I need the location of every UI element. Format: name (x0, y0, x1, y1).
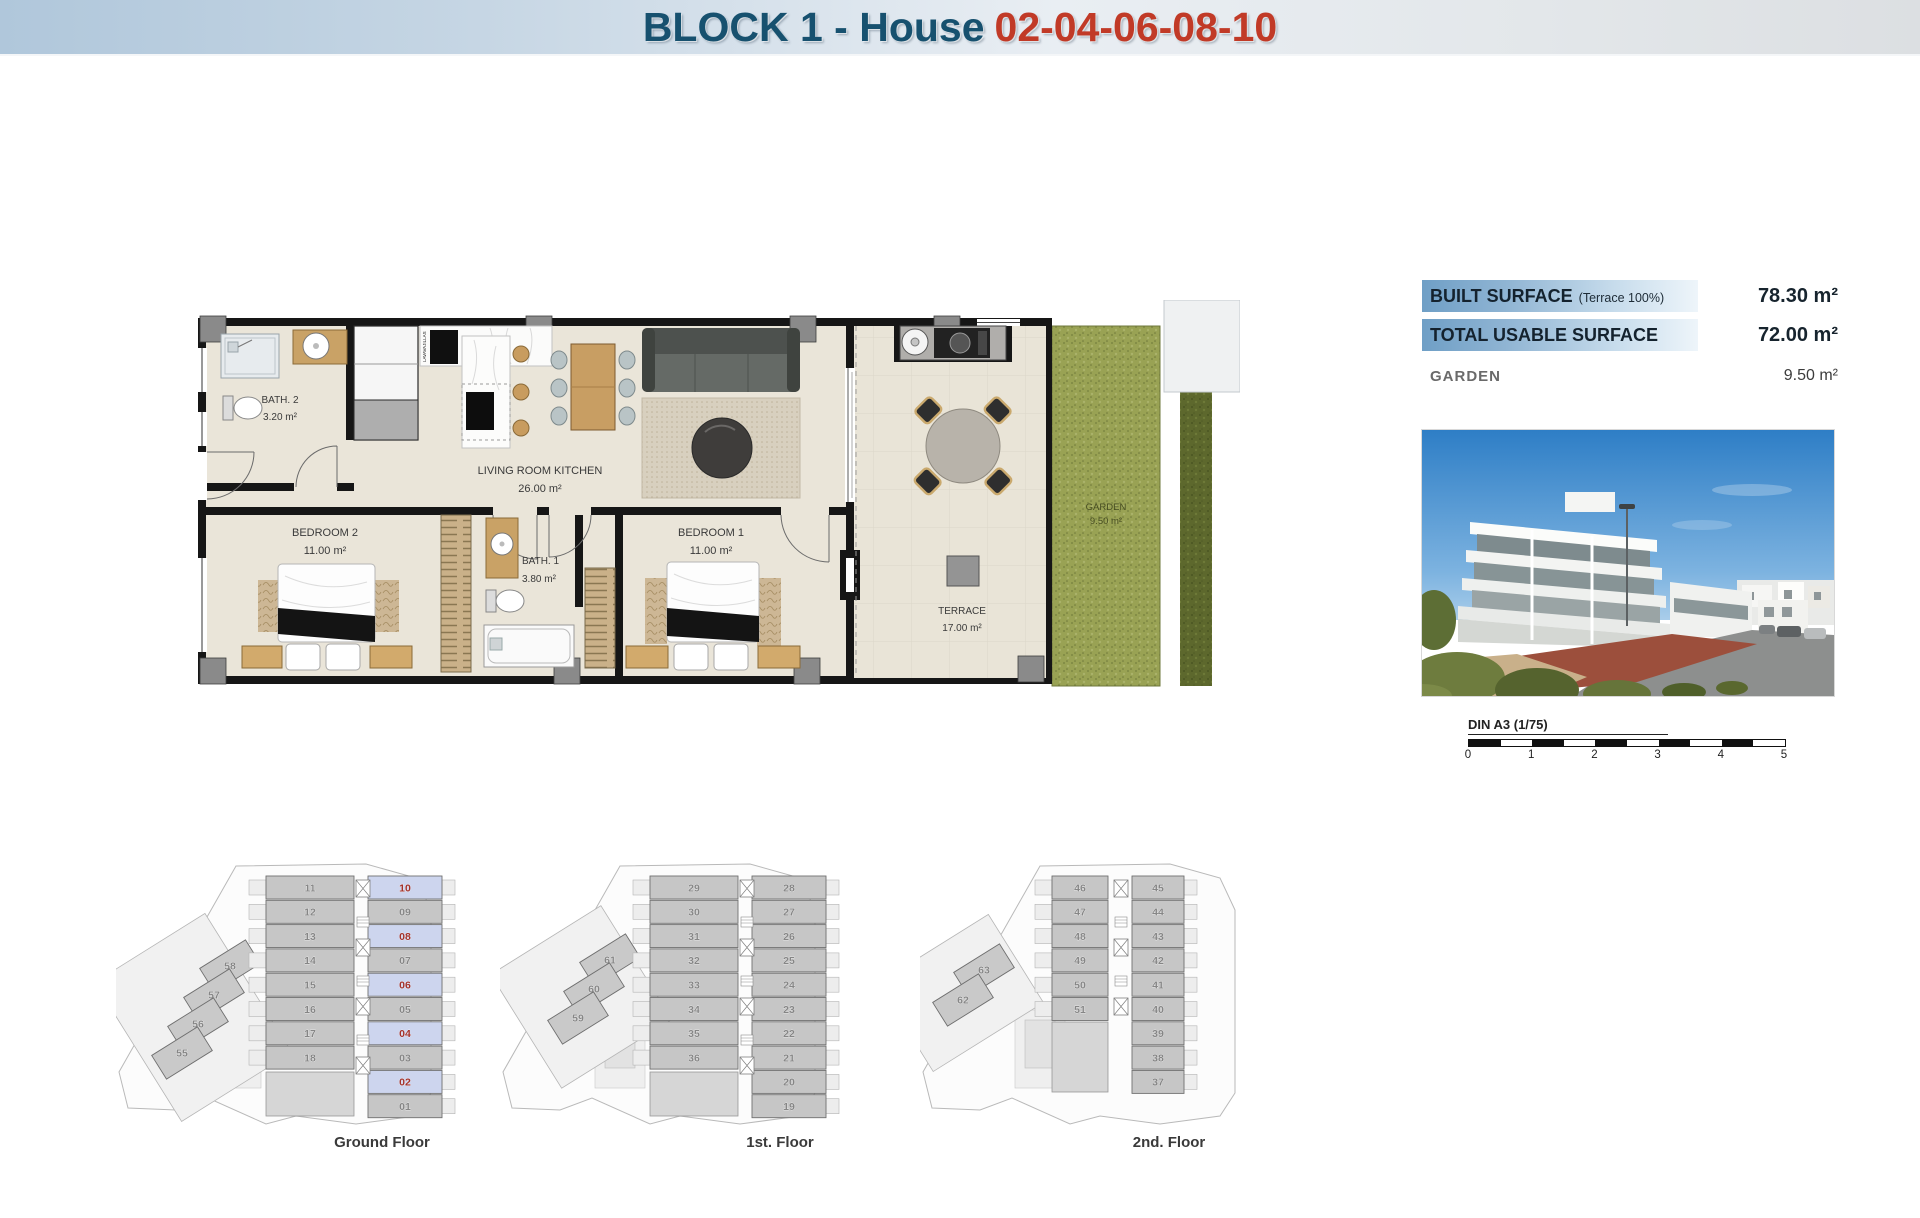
svg-text:26.00 m²: 26.00 m² (518, 483, 562, 495)
scale-bar: DIN A3 (1/75) 012345 (1468, 716, 1786, 763)
unit-number: 14 (304, 955, 316, 967)
unit-number: 09 (399, 907, 411, 919)
unit-number: 55 (176, 1048, 188, 1060)
unit-number: 27 (783, 907, 795, 919)
living-label: LIVING ROOM KITCHEN (478, 465, 603, 477)
garden-label: GARDEN (1086, 502, 1127, 513)
svg-text:BATH. 1: BATH. 1 (522, 556, 559, 567)
svg-text:9.50 m²: 9.50 m² (1090, 516, 1122, 527)
svg-text:3.20 m²: 3.20 m² (263, 412, 298, 423)
usable-surface-label: TOTAL USABLE SURFACE (1422, 325, 1658, 346)
unit-number: 30 (688, 907, 700, 919)
unit-number: 39 (1152, 1028, 1164, 1040)
svg-text:TERRACE: TERRACE (938, 606, 986, 617)
scale-tick: 0 (1465, 749, 1471, 761)
ground-floor-label: Ground Floor (272, 1134, 492, 1151)
garden-label: GARDEN (1422, 368, 1501, 385)
unit-number: 25 (783, 955, 795, 967)
unit-number: 21 (783, 1052, 795, 1064)
unit-number: 22 (783, 1028, 795, 1040)
terrace-table (926, 409, 1000, 483)
appliance-label: LAVAVAJILLAS (422, 331, 427, 362)
unit-number: 59 (572, 1013, 584, 1025)
svg-text:11.00 m²: 11.00 m² (304, 545, 347, 557)
wardrobe-1 (441, 515, 471, 672)
page-header: BLOCK 1 - House02-04-06-08-10 (0, 0, 1920, 56)
scale-tick: 1 (1528, 749, 1534, 761)
usable-surface-row: TOTAL USABLE SURFACE 72.00 m² (1422, 319, 1840, 351)
sofa-area (642, 328, 800, 498)
wardrobe-2 (585, 568, 615, 668)
unit-number: 26 (783, 931, 795, 943)
unit-number: 36 (688, 1052, 700, 1064)
page-title: BLOCK 1 - House02-04-06-08-10 (643, 4, 1277, 51)
svg-text:BATH. 2: BATH. 2 (261, 395, 298, 406)
unit-number: 34 (688, 1004, 700, 1016)
coffee-table (692, 418, 752, 478)
usable-surface-value: 72.00 m² (1758, 324, 1840, 347)
dining-table (551, 344, 635, 430)
unit-number: 10 (399, 882, 411, 894)
built-surface-label: BUILT SURFACE (1430, 286, 1573, 306)
unit-number: 33 (688, 980, 700, 992)
unit-number: 35 (688, 1028, 700, 1040)
first-floor-plan: 6160592930313233343536282726252423222120… (500, 860, 840, 1150)
unit-number: 49 (1074, 955, 1086, 967)
scale-tick: 4 (1718, 749, 1724, 761)
unit-number: 01 (399, 1101, 411, 1113)
unit-number: 29 (688, 882, 700, 894)
scale-tick: 5 (1781, 749, 1787, 761)
unit-number: 20 (783, 1077, 795, 1089)
unit-number: 03 (399, 1052, 411, 1064)
unit-number: 06 (399, 980, 411, 992)
unit-number: 47 (1074, 907, 1086, 919)
scale-ruler (1468, 739, 1786, 747)
unit-number: 42 (1152, 955, 1164, 967)
scale-tick: 2 (1591, 749, 1597, 761)
unit-number: 07 (399, 955, 411, 967)
unit-number: 24 (783, 980, 795, 992)
garden-row: GARDEN 9.50 m² (1422, 363, 1840, 389)
unit-number: 51 (1074, 1004, 1086, 1016)
unit-number: 23 (783, 1004, 795, 1016)
unit-number: 48 (1074, 931, 1086, 943)
svg-text:BEDROOM 1: BEDROOM 1 (678, 527, 744, 539)
neighbour-hedge (1180, 346, 1212, 686)
unit-number: 31 (688, 931, 700, 943)
unit-number: 43 (1152, 931, 1164, 943)
title-house-numbers: 02-04-06-08-10 (995, 4, 1278, 50)
unit-number: 17 (304, 1028, 316, 1040)
neighbour-area (1164, 300, 1240, 392)
terrace-note: (Terrace 100%) (1579, 291, 1664, 305)
title-block-part: BLOCK 1 - House (643, 4, 985, 50)
unit-number: 50 (1074, 980, 1086, 992)
ac-unit (947, 556, 979, 586)
unit-number: 15 (304, 980, 316, 992)
building-photo (1422, 430, 1834, 696)
floorplan-svg: BATH. 2 3.20 m² LAVAVAJILLAS (190, 300, 1240, 700)
ground-floor-plan: 5857565511121314151617181009080706050403… (116, 860, 456, 1150)
unit-number: 08 (399, 931, 411, 943)
surface-table: BUILT SURFACE(Terrace 100%) 78.30 m² TOT… (1422, 280, 1840, 396)
unit-number: 16 (304, 1004, 316, 1016)
unit-number: 19 (783, 1101, 795, 1113)
unit-number: 40 (1152, 1004, 1164, 1016)
built-surface-row: BUILT SURFACE(Terrace 100%) 78.30 m² (1422, 280, 1840, 312)
second-floor-plan: 6362464748495051454443424140393837 (920, 860, 1260, 1150)
built-surface-value: 78.30 m² (1758, 285, 1840, 308)
unit-number: 13 (304, 931, 316, 943)
unit-number: 37 (1152, 1077, 1164, 1089)
unit-number: 28 (783, 882, 795, 894)
apartment-floorplan: BATH. 2 3.20 m² LAVAVAJILLAS (190, 300, 1240, 700)
unit-number: 63 (978, 965, 990, 977)
unit-number: 45 (1152, 882, 1164, 894)
unit-number: 11 (304, 882, 315, 894)
unit-number: 05 (399, 1004, 411, 1016)
scale-tick: 3 (1654, 749, 1660, 761)
unit-number: 41 (1152, 980, 1164, 992)
garden-value: 9.50 m² (1784, 367, 1840, 385)
unit-number: 02 (399, 1077, 411, 1089)
scale-label: DIN A3 (1/75) (1468, 717, 1668, 735)
svg-text:11.00 m²: 11.00 m² (690, 545, 733, 557)
unit-number: 38 (1152, 1052, 1164, 1064)
unit-number: 12 (304, 907, 316, 919)
svg-text:BEDROOM 2: BEDROOM 2 (292, 527, 358, 539)
unit-number: 44 (1152, 907, 1164, 919)
unit-number: 32 (688, 955, 700, 967)
unit-number: 18 (304, 1052, 316, 1064)
unit-number: 04 (399, 1028, 411, 1040)
svg-text:17.00 m²: 17.00 m² (942, 623, 982, 634)
first-floor-label: 1st. Floor (670, 1134, 890, 1151)
scale-numbers: 012345 (1468, 749, 1786, 763)
unit-number: 46 (1074, 882, 1086, 894)
second-floor-label: 2nd. Floor (1059, 1134, 1279, 1151)
unit-number: 62 (957, 995, 969, 1007)
svg-text:3.80 m²: 3.80 m² (522, 574, 557, 585)
